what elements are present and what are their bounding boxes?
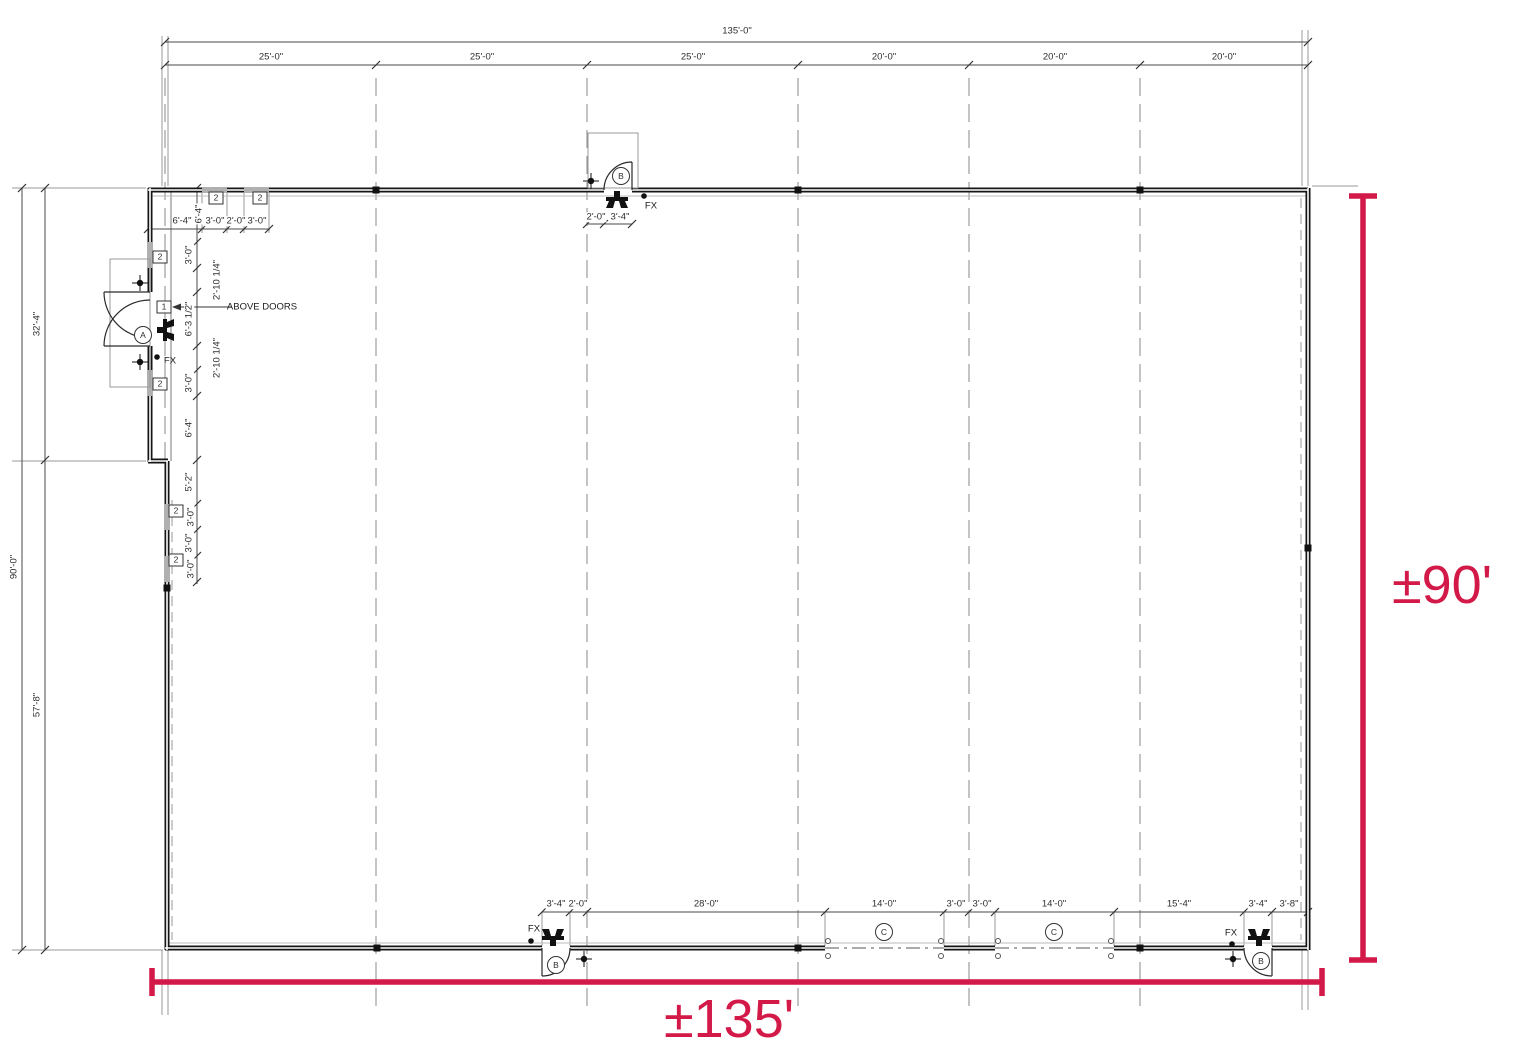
red-width-dimension: ±135' [664, 992, 794, 1046]
dim-bottom-chain: 3'-0" [946, 899, 967, 909]
fixture-label: FX [644, 201, 658, 211]
door-number-tag: 1 [157, 301, 172, 314]
dim-bay: 20'-0" [871, 52, 897, 62]
walls [148, 188, 1308, 950]
dim-overall-height: 90'-0" [9, 554, 19, 580]
fixture-label: FX [1224, 928, 1238, 938]
window-tag: 2 [153, 378, 168, 391]
red-height-dimension: ±90' [1392, 558, 1492, 612]
door-bubble-a: A [134, 326, 152, 344]
door-swings [104, 162, 1272, 976]
dim-bottom-chain: 2'-0" [568, 899, 589, 909]
door-bubble-b: B [1252, 952, 1270, 970]
dim-west-wall: 3'-0" [184, 373, 194, 394]
fx-dots [154, 193, 1235, 947]
dim-top-door: 3'-4" [610, 212, 631, 222]
dim-bottom-chain: 14'-0" [1041, 899, 1067, 909]
dim-bottom-chain: 3'-0" [972, 899, 993, 909]
note-leader [172, 304, 232, 311]
dim-left-segment: 57'-8" [32, 692, 42, 718]
dim-bay: 20'-0" [1211, 52, 1237, 62]
dim-top-door: 2'-0" [586, 212, 607, 222]
fixture-label: FX [527, 924, 541, 934]
dim-west-wall: 3'-0" [184, 245, 194, 266]
dim-bay: 25'-0" [680, 52, 706, 62]
note-above-doors: ABOVE DOORS [226, 302, 298, 312]
door-closer-icons [157, 191, 1270, 946]
dim-left-segment: 32'-4" [32, 311, 42, 337]
fixture-label: FX [163, 356, 177, 366]
dim-west-wall: 6'-4" [184, 418, 194, 439]
red-dimension-lines [152, 196, 1377, 996]
window-tag: 2 [169, 554, 184, 567]
dim-west-wall: 3'-0" [184, 533, 194, 554]
window-tag: 2 [209, 192, 224, 205]
dim-bottom-chain: 15'-4" [1166, 899, 1192, 909]
wall-light-icons [132, 173, 1241, 967]
window-tag: 2 [253, 192, 268, 205]
door-bubble-b: B [612, 167, 630, 185]
dim-bottom-chain: 3'-4" [546, 899, 567, 909]
dim-bay: 25'-0" [258, 52, 284, 62]
dim-west-wall: 6'-3 1/2" [184, 301, 194, 338]
overhead-door-bubble-c: C [1045, 923, 1063, 941]
wall-joint-markers [164, 187, 1312, 952]
dim-window: 2'-0" [226, 216, 247, 226]
door-bubble-b: B [547, 956, 565, 974]
dim-storefront: 6'-4" [194, 204, 204, 225]
dim-window: 3'-0" [205, 216, 226, 226]
dim-west-wall: 2'-10 1/4" [212, 337, 222, 379]
dim-bottom-chain: 3'-4" [1248, 899, 1269, 909]
dim-bottom-chain: 14'-0" [871, 899, 897, 909]
dimension-ticks [18, 38, 1312, 954]
dim-west-wall: 3'-0" [186, 559, 196, 580]
window-tag: 2 [153, 251, 168, 264]
dim-west-wall: 3'-0" [186, 507, 196, 528]
dim-storefront: 6'-4" [172, 216, 193, 226]
dimension-lines [22, 42, 1308, 950]
window-tag: 2 [169, 505, 184, 518]
dim-bay: 20'-0" [1042, 52, 1068, 62]
dim-bay: 25'-0" [469, 52, 495, 62]
dim-window: 3'-0" [247, 216, 268, 226]
floor-plan-page: 135'-0"25'-0"25'-0"25'-0"20'-0"20'-0"20'… [0, 0, 1530, 1049]
overhead-door-bubble-c: C [875, 923, 893, 941]
dim-bottom-chain: 3'-8" [1279, 899, 1300, 909]
dim-overall-width: 135'-0" [721, 26, 752, 36]
dim-west-wall: 2'-10 1/4" [212, 259, 222, 301]
grid-lines [12, 30, 1358, 1015]
dim-bottom-chain: 28'-0" [693, 899, 719, 909]
floor-plan-drawing [0, 0, 1530, 1049]
dim-west-wall: 5'-2" [184, 472, 194, 493]
